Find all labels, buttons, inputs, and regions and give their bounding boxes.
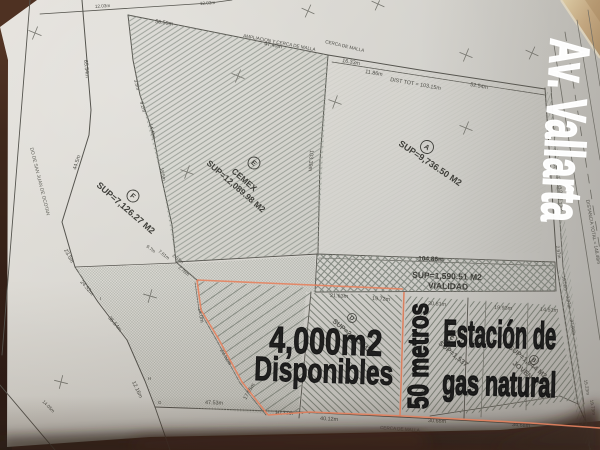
svg-text:50 metros: 50 metros [403,303,435,409]
svg-text:Disponibles: Disponibles [254,350,394,393]
svg-text:Estación de: Estación de [443,313,557,358]
svg-text:gas natural: gas natural [442,363,557,405]
svg-text:Av. Vallarta: Av. Vallarta [529,37,600,224]
